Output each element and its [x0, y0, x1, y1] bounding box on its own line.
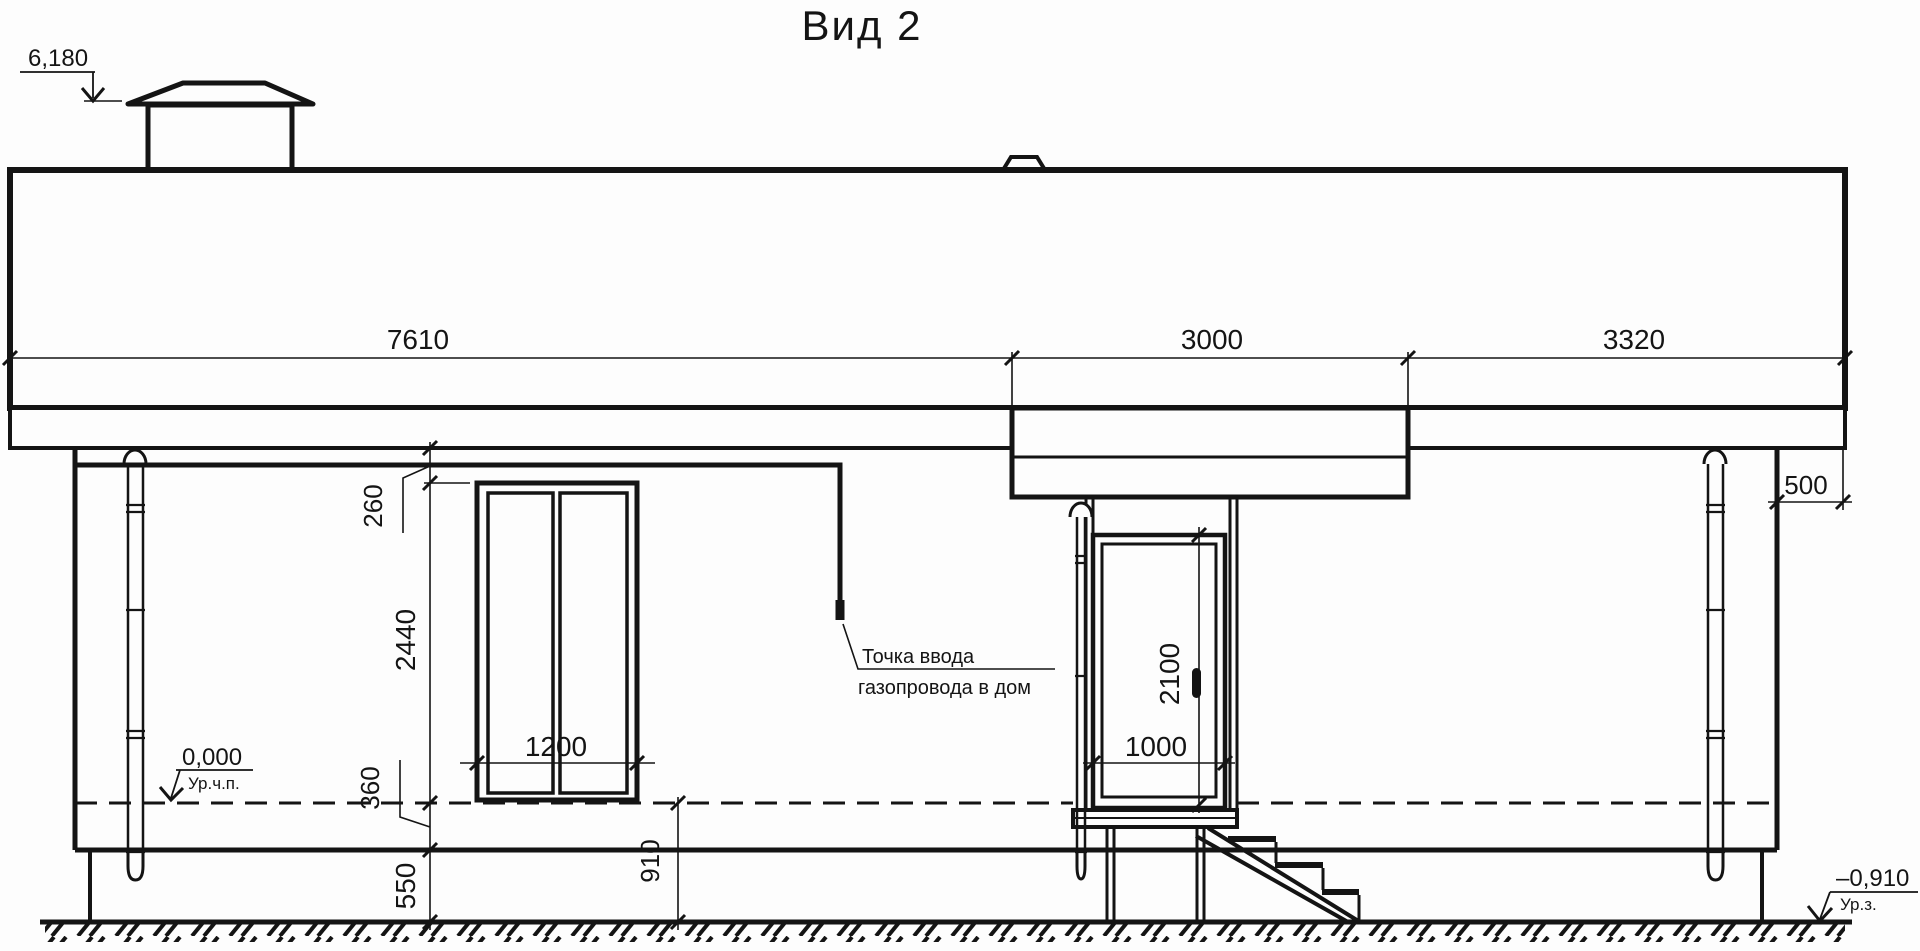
dim-overhang-500: 500	[1784, 470, 1827, 500]
dim-910: 910	[635, 839, 665, 882]
dim-door-height-2100: 2100	[1154, 643, 1185, 705]
ground	[40, 922, 1852, 942]
dim-door-width-1000: 1000	[1125, 731, 1187, 762]
roof-fascia	[10, 408, 1845, 448]
dim-window-height-2440: 2440	[390, 609, 421, 671]
page-title: Вид 2	[801, 2, 922, 49]
gas-annotation-line1: Точка ввода	[862, 646, 975, 668]
elevation-caption: Ур.ч.п.	[188, 774, 240, 793]
dim-260: 260	[358, 484, 388, 527]
elevation-caption: Ур.з.	[1840, 895, 1877, 914]
downpipe-funnel-icon	[1070, 503, 1092, 517]
dim-plinth-550: 550	[390, 863, 421, 910]
elevation-value: –0,910	[1836, 865, 1909, 892]
gas-annotation-line2: газопровода в дом	[858, 677, 1031, 699]
dim-roof-7610: 7610	[387, 324, 449, 355]
dim-roof-3000: 3000	[1181, 324, 1243, 355]
dim-window-width-1200: 1200	[525, 731, 587, 762]
roof	[10, 170, 1845, 448]
downpipe-funnel-icon	[1704, 450, 1726, 464]
dim-roof-3320: 3320	[1603, 324, 1665, 355]
chimney-body	[148, 105, 292, 171]
entrance-canopy	[1012, 408, 1408, 497]
downpipe-funnel-icon	[124, 450, 146, 464]
canopy-block	[1012, 408, 1408, 497]
elevation-value: 6,180	[28, 45, 88, 72]
chimney	[128, 83, 313, 171]
elevation-value: 0,000	[182, 744, 242, 771]
elevation-drawing: Точка ввода газопровода в дом 7610 3000 …	[0, 0, 1920, 951]
dim-360: 360	[355, 766, 385, 809]
roof-slab	[10, 170, 1845, 408]
ground-hatch	[45, 924, 1845, 942]
